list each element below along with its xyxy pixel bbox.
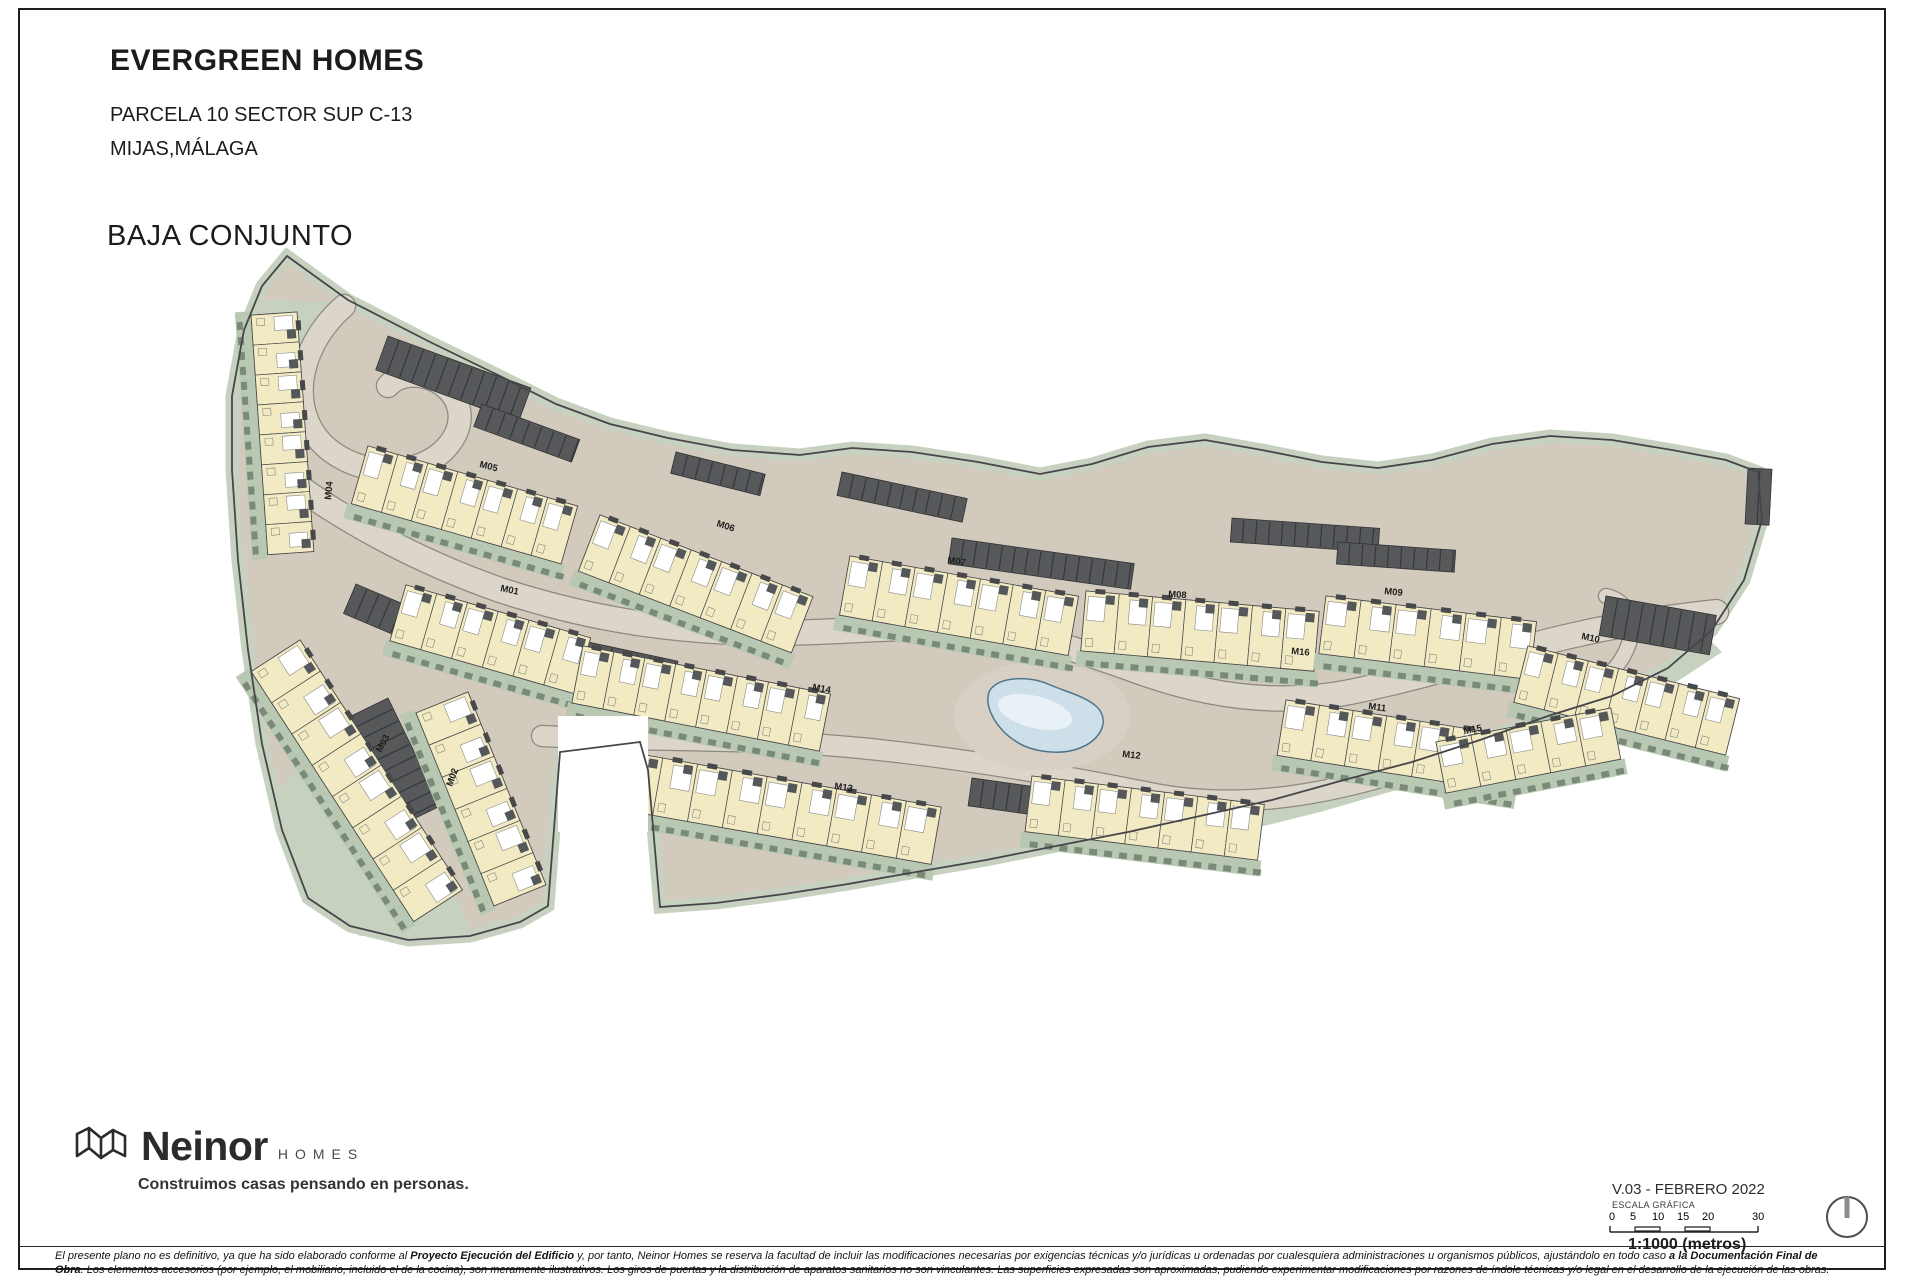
scale-mark: 10 [1652, 1211, 1664, 1223]
legal-disclaimer: El presente plano no es definitivo, ya q… [55, 1250, 1867, 1277]
scale-mark: 5 [1630, 1211, 1636, 1223]
brand-name: Neinor [141, 1126, 268, 1166]
drawing-version: V.03 - FEBRERO 2022 [1612, 1181, 1765, 1198]
neinor-zigzag-icon [75, 1126, 127, 1170]
svg-text:M08: M08 [1168, 589, 1187, 601]
scale-mark: 20 [1702, 1211, 1714, 1223]
brand-logo: Neinor HOMES [75, 1126, 364, 1172]
scale-mark: 15 [1677, 1211, 1689, 1223]
svg-text:M09: M09 [1384, 586, 1404, 599]
svg-text:M04: M04 [323, 480, 336, 500]
brand-tagline: Construimos casas pensando en personas. [138, 1176, 469, 1194]
svg-text:M16: M16 [1291, 646, 1310, 659]
svg-text:M12: M12 [1122, 749, 1142, 762]
location-subtitle: MIJAS,MÁLAGA [110, 138, 258, 161]
parcel-subtitle: PARCELA 10 SECTOR SUP C-13 [110, 104, 412, 127]
north-arrow-icon [1823, 1192, 1871, 1240]
scale-title: ESCALA GRÁFICA [1612, 1200, 1695, 1210]
graphic-scale-bar: 0 5 10 15 20 30 [1608, 1210, 1768, 1236]
scale-mark: 0 [1609, 1211, 1615, 1223]
scale-mark: 30 [1752, 1211, 1764, 1223]
project-title: EVERGREEN HOMES [110, 44, 424, 78]
brand-sub-label: HOMES [278, 1146, 364, 1162]
disclaimer-line-1: El presente plano no es definitivo, ya q… [55, 1250, 1867, 1264]
disclaimer-line-2: Obra. Los elementos accesorios (por ejem… [55, 1264, 1867, 1278]
plan-view-title: BAJA CONJUNTO [107, 220, 353, 253]
site-plan-drawing: M01M02M03M04M05M06M07M08M09M10M11M12M13M… [0, 0, 1920, 1280]
